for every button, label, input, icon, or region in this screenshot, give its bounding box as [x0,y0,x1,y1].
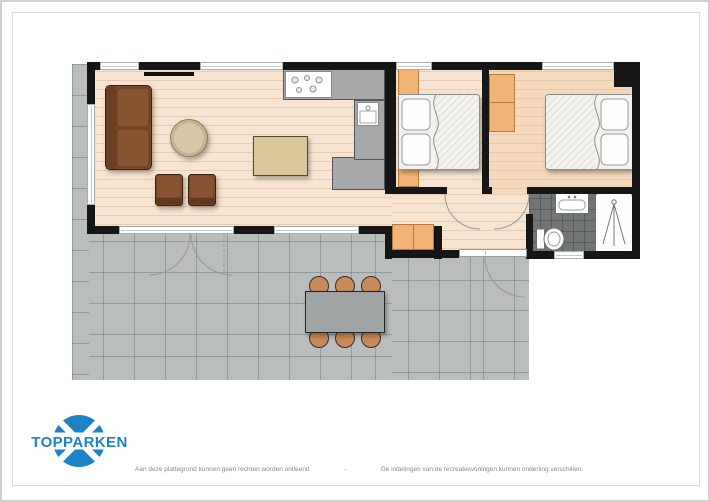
terrace-floor [392,257,529,380]
wall-segment [614,62,640,87]
tv [144,72,194,76]
window [554,251,584,259]
cabinet-divider [490,102,514,103]
topparken-logo: TOPPARKEN [22,405,137,477]
washbasin [555,192,589,214]
wall-segment [432,62,542,70]
sofa [105,85,152,170]
armchair-drawing [155,174,183,206]
kitchen-sink [357,102,379,126]
outdoor-table [305,291,385,333]
wall-segment [385,62,396,194]
french-doors [119,226,234,234]
toilet-drawing [536,226,566,252]
wall-segment [234,226,274,234]
disclaimer-right: De indelingen van de recreatiewoningen k… [381,466,583,473]
window [542,62,614,70]
disclaimer-left: Aan deze plattegrond kunnen geen rechten… [135,466,310,473]
wall-segment [482,62,489,194]
shower-drawing [595,192,633,255]
wall-segment [434,226,442,259]
washbasin-drawing [555,192,589,214]
wall-segment [527,251,554,259]
bed-double [545,94,633,170]
coffee-table [170,119,208,157]
window [87,104,95,205]
window [200,62,283,70]
armchair-drawing [188,174,216,206]
footer-disclaimer: Aan deze plattegrond kunnen geen rechten… [135,466,583,473]
dining-table [253,136,308,176]
wall-segment [87,62,100,70]
bed-double [398,94,480,170]
wall-segment [359,226,392,234]
wall-segment [87,205,95,234]
wall-segment [139,62,200,70]
window [274,226,359,234]
bed-drawing [545,94,633,170]
brand-name: TOPPARKEN [22,434,137,451]
armchair [155,174,183,206]
entrance-door [459,249,527,257]
wall-segment [527,187,640,194]
cooktop-burners [285,71,332,98]
window [100,62,139,70]
wall-segment [632,62,640,259]
wardrobe [398,69,419,95]
kitchen-counter [332,157,385,190]
window [396,62,432,70]
cabinet-divider [413,225,414,249]
wardrobe [489,74,515,132]
floorplan-page: TOPPARKEN Aan deze plattegrond kunnen ge… [0,0,710,502]
wall-segment [283,62,385,70]
sofa-drawing [105,85,152,170]
wall-segment [385,250,459,258]
shower [595,192,633,255]
toilet [536,226,566,252]
cooktop [285,71,332,98]
bed-drawing [398,94,480,170]
armchair [188,174,216,206]
kitchen-sink-drawing [357,102,379,126]
disclaimer-separator: - [344,466,346,473]
